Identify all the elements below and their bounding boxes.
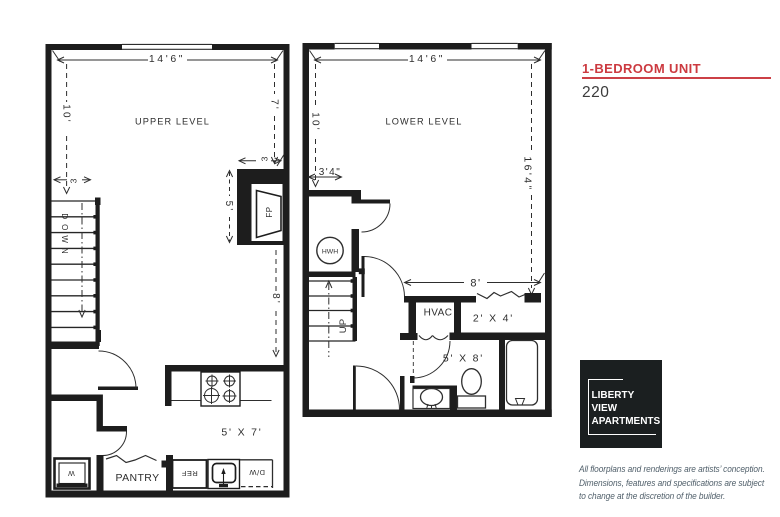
svg-text:UP: UP bbox=[338, 318, 349, 334]
svg-text:W: W bbox=[68, 469, 75, 476]
svg-text:HWH: HWH bbox=[322, 249, 338, 256]
svg-text:8': 8' bbox=[470, 278, 481, 290]
svg-text:3'4": 3'4" bbox=[319, 167, 342, 178]
svg-text:14'6": 14'6" bbox=[409, 53, 445, 65]
svg-text:10': 10' bbox=[310, 112, 321, 132]
svg-text:LOWER LEVEL: LOWER LEVEL bbox=[386, 117, 463, 127]
svg-text:D/W: D/W bbox=[249, 468, 266, 477]
svg-text:PANTRY: PANTRY bbox=[115, 472, 159, 484]
svg-text:3: 3 bbox=[259, 156, 269, 161]
svg-text:FP: FP bbox=[265, 206, 274, 217]
svg-text:14'6": 14'6" bbox=[149, 53, 185, 65]
svg-text:7': 7' bbox=[269, 99, 280, 111]
svg-text:REF: REF bbox=[181, 469, 198, 478]
svg-text:3: 3 bbox=[69, 178, 79, 183]
svg-text:UPPER LEVEL: UPPER LEVEL bbox=[135, 117, 210, 127]
svg-text:5': 5' bbox=[223, 201, 234, 213]
svg-text:5' X 8': 5' X 8' bbox=[443, 353, 484, 365]
svg-text:16'4": 16'4" bbox=[521, 156, 533, 191]
svg-text:HVAC: HVAC bbox=[424, 308, 453, 319]
svg-text:10': 10' bbox=[61, 104, 72, 124]
svg-text:5' X 7': 5' X 7' bbox=[221, 427, 262, 439]
svg-text:2' X 4': 2' X 4' bbox=[473, 313, 514, 325]
svg-text:8': 8' bbox=[270, 293, 281, 305]
svg-text:DOWN: DOWN bbox=[60, 213, 69, 258]
